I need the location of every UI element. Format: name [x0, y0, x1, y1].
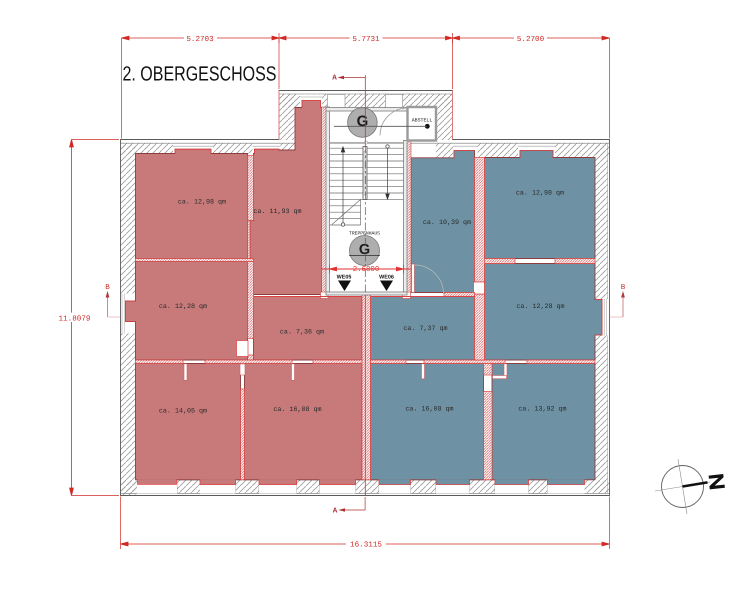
svg-text:2. OBERGESCHOSS: 2. OBERGESCHOSS — [123, 63, 277, 86]
svg-text:ca. 10,39 qm: ca. 10,39 qm — [423, 219, 471, 227]
svg-text:5.2700: 5.2700 — [517, 35, 545, 44]
svg-text:ca. 11,93 qm: ca. 11,93 qm — [253, 208, 301, 216]
svg-text:5.7731: 5.7731 — [352, 35, 380, 44]
svg-text:ca. 14,05 qm: ca. 14,05 qm — [159, 408, 207, 416]
svg-text:G: G — [357, 113, 369, 130]
svg-text:ca. 12,98 qm: ca. 12,98 qm — [178, 199, 226, 207]
svg-text:5.2703: 5.2703 — [186, 35, 214, 44]
svg-text:ca. 13,92 qm: ca. 13,92 qm — [518, 406, 566, 414]
svg-text:ca. 7,37 qm: ca. 7,37 qm — [403, 325, 447, 333]
svg-text:11.8079: 11.8079 — [59, 315, 91, 324]
svg-text:G: G — [359, 242, 370, 258]
svg-text:TREPPENHAUS: TREPPENHAUS — [349, 231, 380, 237]
svg-text:16.3115: 16.3115 — [350, 541, 382, 550]
svg-text:ca. 16,08 qm: ca. 16,08 qm — [273, 406, 321, 414]
svg-text:B: B — [105, 284, 110, 292]
svg-text:A: A — [333, 508, 338, 516]
svg-text:A: A — [332, 75, 337, 83]
svg-text:ca. 7,36 qm: ca. 7,36 qm — [280, 329, 324, 337]
svg-text:WE05: WE05 — [337, 275, 352, 281]
svg-text:ca. 12,28 qm: ca. 12,28 qm — [516, 303, 564, 311]
svg-text:2.6800: 2.6800 — [353, 266, 380, 274]
svg-text:ca. 12,28 qm: ca. 12,28 qm — [159, 303, 207, 311]
svg-text:ABSTELL: ABSTELL — [412, 118, 433, 124]
svg-text:ca. 16,08 qm: ca. 16,08 qm — [405, 406, 453, 414]
svg-text:ca. 12,98 qm: ca. 12,98 qm — [516, 190, 564, 198]
svg-text:WE06: WE06 — [379, 275, 394, 281]
svg-text:B: B — [621, 284, 626, 292]
